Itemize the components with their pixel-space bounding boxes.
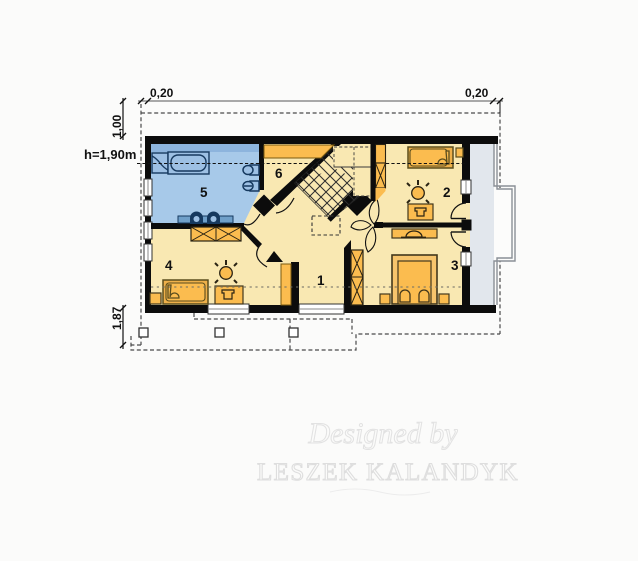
svg-text:5: 5 [200,185,208,200]
svg-text:0,20: 0,20 [465,86,489,100]
svg-text:4: 4 [165,258,173,273]
svg-text:LESZEK KALANDYK: LESZEK KALANDYK [257,459,519,486]
svg-text:Designed by: Designed by [307,417,458,450]
svg-text:0,20: 0,20 [150,86,174,100]
svg-text:h=1,90m: h=1,90m [84,147,136,162]
svg-text:1: 1 [317,273,325,288]
svg-text:6: 6 [275,166,283,181]
svg-text:2: 2 [443,185,451,200]
svg-text:3: 3 [451,258,459,273]
svg-text:1,00: 1,00 [110,114,124,138]
